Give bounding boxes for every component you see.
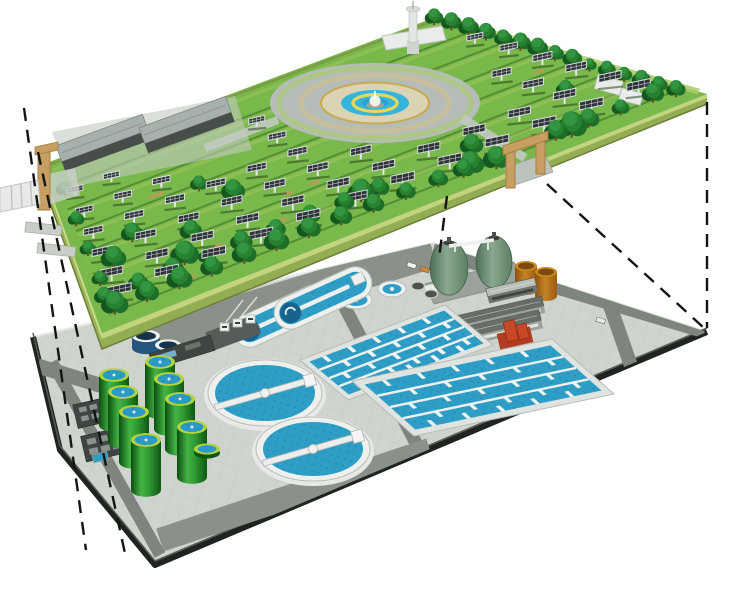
round-tank [378,281,406,297]
digester-tank [131,433,161,497]
hopper-machine [246,315,255,323]
scene-svg [0,0,740,589]
tree [425,8,444,25]
short-digester [194,444,220,459]
small-tank [425,290,438,298]
clarifier-tank [252,416,374,486]
storage-tank [535,267,557,301]
hopper-machine [233,319,242,327]
hopper-machine [220,323,229,331]
access-ramp [25,222,62,236]
fountain-plaza [270,63,480,143]
small-tank [412,282,425,290]
exploded-site-illustration: Exploded axonometric illustration of a g… [0,0,740,589]
tree [458,17,479,35]
